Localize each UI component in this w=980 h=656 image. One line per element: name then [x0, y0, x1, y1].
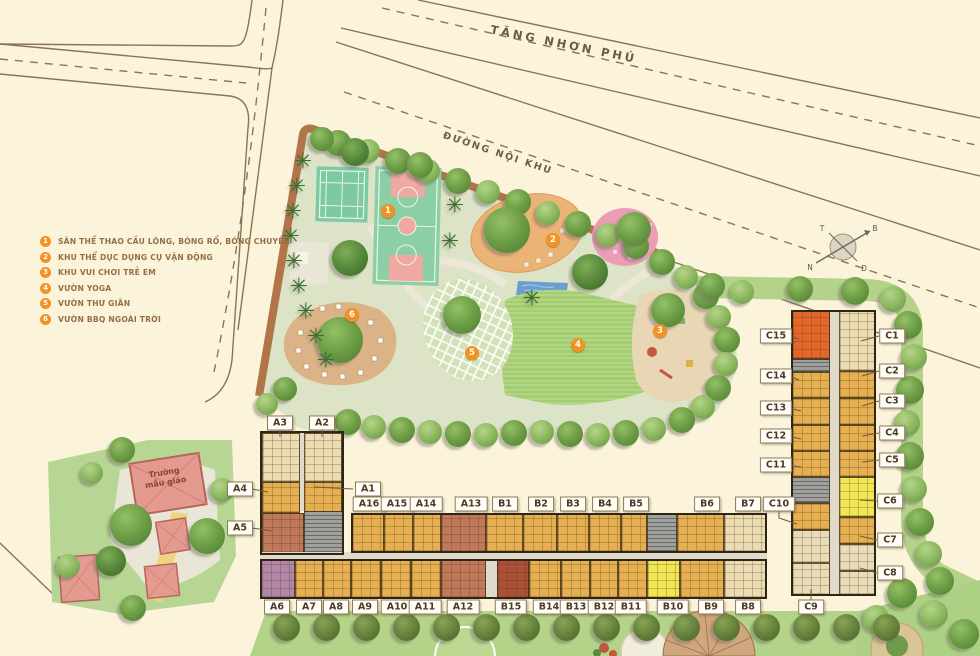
building-label-A8: A8: [323, 600, 349, 615]
building-label-C2: C2: [879, 364, 905, 379]
building-label-B15: B15: [495, 600, 527, 615]
tree: [473, 614, 500, 641]
tree: [586, 423, 610, 447]
tree: [593, 614, 620, 641]
tree: [753, 614, 780, 641]
tree: [81, 462, 103, 484]
tree: [553, 614, 580, 641]
building-label-C15: C15: [760, 329, 792, 344]
building-label-B7: B7: [735, 497, 761, 512]
building-label-C10: C10: [763, 497, 795, 512]
tree: [787, 276, 813, 302]
tree: [714, 352, 738, 376]
main-road-centerline: [382, 8, 980, 146]
legend-item-6: 6VƯỜN BBQ NGOÀI TRỜI: [40, 314, 290, 325]
legend-label: KHU VUI CHƠI TRẺ EM: [58, 268, 156, 277]
building-label-C4: C4: [879, 426, 905, 441]
tree: [445, 421, 471, 447]
road-corner: [0, 44, 272, 69]
tree: [613, 420, 639, 446]
building-label-A9: A9: [352, 600, 378, 615]
basketball-court: [372, 166, 441, 286]
building-label-B11: B11: [615, 600, 647, 615]
building-label-B6: B6: [694, 497, 720, 512]
legend-label: VƯỜN YOGA: [58, 284, 111, 293]
tree: [873, 614, 900, 641]
palm-tree: ✳: [523, 286, 541, 311]
tree: [674, 265, 698, 289]
tree: [887, 578, 917, 608]
building-label-C9: C9: [798, 600, 824, 615]
tree: [673, 614, 700, 641]
park-marker-5: 5: [465, 346, 479, 360]
palm-tree: ✳: [297, 299, 315, 324]
tree: [513, 614, 540, 641]
building-label-C6: C6: [877, 494, 903, 509]
vertical-road-right-edge-top: [272, 0, 283, 68]
palm-tree: ✳: [317, 348, 335, 373]
building-label-C7: C7: [877, 533, 903, 548]
tree: [341, 138, 369, 166]
building-label-C12: C12: [760, 429, 792, 444]
building-label-B4: B4: [592, 497, 618, 512]
tree: [916, 541, 942, 567]
tree: [633, 614, 660, 641]
park-marker-3: 3: [653, 324, 667, 338]
palm-tree: ✳: [290, 274, 308, 299]
tree: [901, 476, 927, 502]
tree: [109, 437, 135, 463]
tree: [617, 212, 651, 246]
tree: [536, 201, 560, 225]
park-marker-4: 4: [571, 338, 585, 352]
tree: [110, 504, 152, 546]
tree: [273, 614, 300, 641]
tree: [651, 293, 685, 327]
legend-label: VƯỜN THƯ GIÃN: [58, 299, 130, 308]
tree: [501, 420, 527, 446]
tree: [189, 518, 225, 554]
palm-tree: ✳: [288, 174, 306, 199]
building-outline: [791, 310, 876, 596]
legend-item-1: 1SÂN THỂ THAO CẦU LÔNG, BÓNG RỔ, BÓNG CH…: [40, 236, 290, 247]
tree: [313, 614, 340, 641]
tree: [484, 207, 530, 253]
tree: [730, 280, 754, 304]
tree: [649, 249, 675, 275]
building-label-A13: A13: [455, 497, 488, 512]
site-plan-map: TĂNG NHƠN PHÚ ĐƯỜNG NỘI KHU B N T Đ 1SÂN…: [0, 0, 980, 656]
tree: [407, 152, 433, 178]
building-label-A5: A5: [227, 521, 253, 536]
tree: [418, 420, 442, 444]
palm-tree: ✳: [441, 229, 459, 254]
tree: [362, 415, 386, 439]
building-label-B5: B5: [623, 497, 649, 512]
legend-label: SÂN THỂ THAO CẦU LÔNG, BÓNG RỔ, BÓNG CHU…: [58, 237, 290, 246]
building-label-A14: A14: [410, 497, 443, 512]
tree: [841, 277, 869, 305]
tree: [256, 393, 278, 415]
tree: [332, 240, 368, 276]
tree: [565, 211, 591, 237]
tree: [530, 420, 554, 444]
building-outline: [351, 513, 767, 553]
palm-tree: ✳: [307, 324, 325, 349]
legend-number: 6: [40, 314, 51, 325]
building-label-C5: C5: [879, 453, 905, 468]
tree: [476, 180, 500, 204]
legend-label: VƯỜN BBQ NGOÀI TRỜI: [58, 315, 161, 324]
building-label-A6: A6: [264, 600, 290, 615]
tree: [926, 567, 954, 595]
tree: [691, 395, 715, 419]
palm-tree: ✳: [294, 149, 312, 174]
legend: 1SÂN THỂ THAO CẦU LÔNG, BÓNG RỔ, BÓNG CH…: [40, 236, 290, 329]
legend-number: 2: [40, 252, 51, 263]
park-marker-1: 1: [381, 204, 395, 218]
main-road-label: TĂNG NHƠN PHÚ: [489, 21, 638, 65]
tree: [669, 407, 695, 433]
legend-label: KHU THỂ DỤC DỤNG CỤ VẬN ĐỘNG: [58, 253, 213, 262]
building-label-B9: B9: [698, 600, 724, 615]
building-label-C1: C1: [879, 329, 905, 344]
tree: [707, 305, 731, 329]
tree: [713, 614, 740, 641]
tree: [949, 619, 979, 649]
building-label-B2: B2: [528, 497, 554, 512]
tree: [310, 127, 334, 151]
park-marker-6: 6: [345, 308, 359, 322]
tree: [906, 508, 934, 536]
tree: [433, 614, 460, 641]
building-label-A2: A2: [309, 416, 335, 431]
tree: [714, 327, 740, 353]
tree: [572, 254, 608, 290]
tree: [96, 546, 126, 576]
legend-number: 3: [40, 267, 51, 278]
legend-number: 4: [40, 283, 51, 294]
palm-tree: ✳: [446, 193, 464, 218]
tree: [920, 600, 948, 628]
tree: [443, 296, 481, 334]
building-label-C13: C13: [760, 401, 792, 416]
left-road-upper-edge: [0, 0, 252, 46]
palm-tree: ✳: [284, 199, 302, 224]
tree: [557, 421, 583, 447]
legend-number: 1: [40, 236, 51, 247]
tree: [699, 273, 725, 299]
tree: [901, 344, 927, 370]
tree: [474, 423, 498, 447]
building-label-A15: A15: [381, 497, 414, 512]
building-label-B1: B1: [492, 497, 518, 512]
main-road-lower-edge: [341, 28, 980, 176]
building-outline: [260, 559, 767, 599]
building-label-C11: C11: [760, 458, 792, 473]
tree: [389, 417, 415, 443]
legend-item-3: 3KHU VUI CHƠI TRẺ EM: [40, 267, 290, 278]
building-label-B3: B3: [560, 497, 586, 512]
legend-item-2: 2KHU THỂ DỤC DỤNG CỤ VẬN ĐỘNG: [40, 252, 290, 263]
tree: [642, 417, 666, 441]
legend-item-4: 4VƯỜN YOGA: [40, 283, 290, 294]
tree: [833, 614, 860, 641]
building-label-C14: C14: [760, 369, 792, 384]
badminton-court: [315, 166, 368, 222]
main-road-upper-edge: [418, 0, 980, 118]
park-marker-2: 2: [546, 233, 560, 247]
tree: [120, 595, 146, 621]
building-label-A4: A4: [227, 482, 253, 497]
building-label-A3: A3: [267, 416, 293, 431]
tree: [273, 377, 297, 401]
tree: [880, 286, 906, 312]
building-label-A11: A11: [409, 600, 442, 615]
legend-item-5: 5VƯỜN THƯ GIÃN: [40, 298, 290, 309]
tree: [793, 614, 820, 641]
left-road-centerline: [0, 59, 246, 83]
building-label-A7: A7: [296, 600, 322, 615]
tree: [353, 614, 380, 641]
building-label-C3: C3: [879, 394, 905, 409]
building-outline: [260, 431, 344, 555]
tree: [445, 168, 471, 194]
building-label-B8: B8: [735, 600, 761, 615]
tree: [56, 554, 80, 578]
building-label-C8: C8: [877, 566, 903, 581]
building-label-B10: B10: [657, 600, 689, 615]
building-label-A12: A12: [447, 600, 480, 615]
building-label-A1: A1: [355, 482, 381, 497]
tree: [393, 614, 420, 641]
legend-number: 5: [40, 298, 51, 309]
